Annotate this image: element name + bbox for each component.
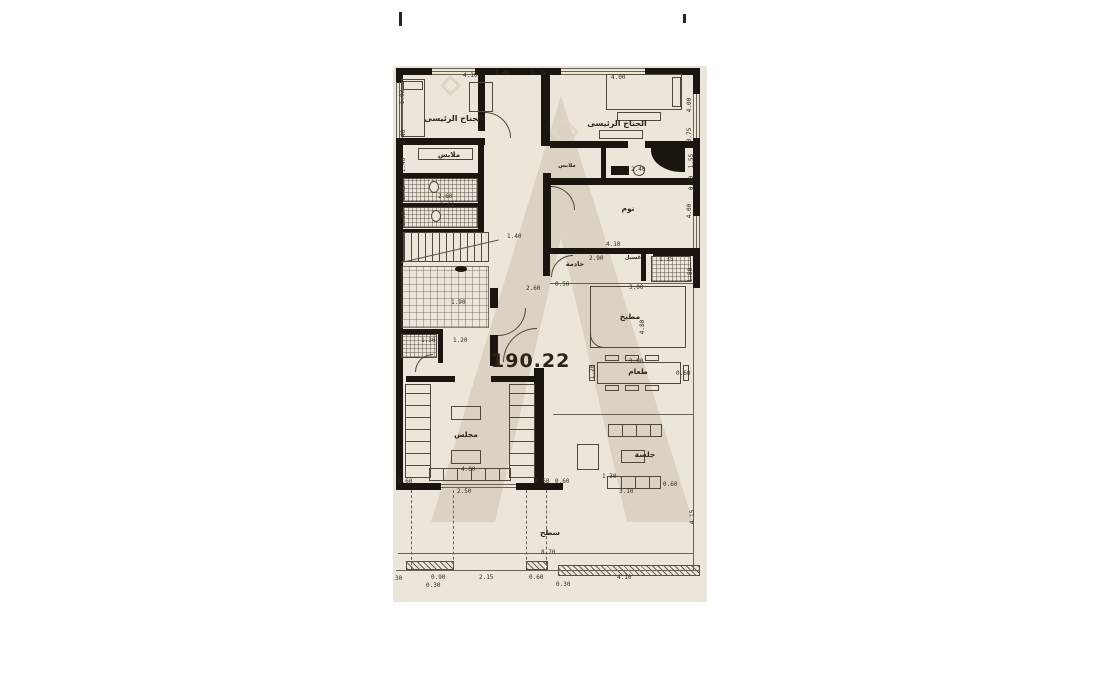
dim-label: 1.30 (401, 212, 407, 226)
dim-label: 0.70 (689, 176, 695, 190)
dim-label: 30 (395, 576, 402, 582)
wall (693, 68, 700, 94)
dim-label: 0.50 (555, 282, 569, 288)
floor-plan: الجناح الرئيسى الجناح الرئيسى ملابس ملاب… (393, 66, 707, 602)
dim-label: 0.60 (398, 479, 412, 485)
terrace-dashed-line (411, 490, 412, 570)
dim-label: 4.00 (611, 75, 625, 81)
sofa (608, 424, 662, 437)
line (553, 414, 693, 415)
room-label-closet: ملابس (551, 163, 583, 169)
footing-hatch (526, 561, 548, 570)
wall (478, 138, 484, 232)
dim-label: 0.60 (555, 479, 569, 485)
wall (550, 141, 628, 148)
chair (605, 355, 619, 361)
page: { "document": { "type": "architectural-f… (0, 0, 1096, 693)
dim-label: 2.60 (440, 203, 454, 209)
dim-label: 1.35 (659, 257, 673, 263)
dim-label: 1.40 (507, 234, 521, 240)
dim-label: 1.40 (495, 71, 509, 77)
area-value: 190.22 (491, 350, 570, 372)
room-label-terrace: سطح (533, 528, 567, 537)
sink-counter (611, 166, 629, 175)
dim-label: 2.60 (438, 194, 452, 200)
dim-label: 1.90 (451, 300, 465, 306)
chair (625, 385, 639, 391)
wall (543, 254, 550, 276)
footing-hatch (406, 561, 454, 570)
page-corner-mark (399, 12, 402, 26)
wall (396, 138, 485, 145)
table (451, 406, 481, 420)
dim-label: 4.10 (617, 575, 631, 581)
wall (653, 248, 700, 256)
dim-label: 1.20 (590, 365, 596, 379)
dim-label: 4.00 (461, 467, 475, 473)
entry-floor-tiles (401, 266, 489, 328)
pillow (672, 77, 681, 107)
dim-label: 3.10 (619, 489, 633, 495)
dim-label: 4.00 (687, 98, 693, 112)
terrace-dashed-line (526, 490, 527, 570)
dim-label: 1.45 (401, 186, 407, 200)
dim-label: 0.30 (426, 583, 440, 589)
wall (550, 178, 700, 185)
dim-label: 1.30 (421, 338, 435, 344)
wall (534, 368, 544, 490)
room-label-maid: خادمة (557, 260, 593, 268)
pillow (403, 81, 423, 90)
majlis-sofa (509, 384, 535, 478)
dim-label: 1.30 (602, 474, 616, 480)
dim-label: 3.00 (629, 285, 643, 291)
wall (541, 68, 550, 146)
dim-label: 1.40 (401, 130, 407, 144)
dim-label: 1.50 (688, 268, 694, 282)
dim-label: 8.70 (541, 550, 555, 556)
chair (645, 385, 659, 391)
dim-label: 2.40 (631, 167, 645, 173)
dim-label: 2.90 (589, 256, 603, 262)
chair (605, 385, 619, 391)
dim-label: 3.00 (629, 359, 643, 365)
dim-label: 0.75 (687, 128, 693, 142)
line (693, 288, 694, 570)
dim-label: 0.30 (556, 582, 570, 588)
dim-label: 4.80 (640, 320, 646, 334)
window (441, 484, 516, 488)
toilet (429, 181, 439, 193)
room-label-bedroom: نوم (611, 204, 645, 213)
wall (601, 148, 606, 178)
dim-label: 0.70 (531, 71, 545, 77)
wardrobe (469, 82, 493, 112)
majlis-sofa (405, 384, 431, 478)
dim-label: 0.60 (663, 482, 677, 488)
dim-label: 0.60 (529, 575, 543, 581)
room-label-laundry: غسيل (619, 255, 647, 261)
page-corner-mark (683, 14, 686, 23)
wall (406, 376, 455, 382)
room-label-sitting: جلسة (626, 450, 664, 459)
armchair (577, 444, 599, 470)
stair-arrow (455, 266, 467, 272)
room-label-master-right: الجناح الرئيسى (573, 119, 661, 128)
wardrobe (599, 130, 643, 139)
table (451, 450, 481, 464)
room-label-master-left: الجناح الرئيسى (415, 114, 493, 123)
dim-label: 2.15 (479, 575, 493, 581)
dim-label: 4.00 (687, 204, 693, 218)
dim-label: 4.15 (690, 510, 696, 524)
dim-label: 2.50 (457, 489, 471, 495)
toilet (431, 210, 441, 222)
dim-label: 0.60 (676, 371, 690, 377)
room-label-majlis: مجلس (447, 430, 485, 439)
dim-label: 1.55 (689, 154, 695, 168)
wall (438, 329, 443, 363)
terrace-dashed-line (453, 490, 454, 570)
room-label-closet: ملابس (431, 151, 467, 159)
dim-label: 4.10 (606, 242, 620, 248)
dim-label: 1.40 (401, 158, 407, 172)
room-label-dining: طعام (617, 367, 659, 376)
line (550, 283, 693, 284)
wall (491, 376, 539, 382)
dim-label: 4.10 (463, 73, 477, 79)
wall (490, 288, 498, 308)
window (693, 94, 700, 138)
chair (645, 355, 659, 361)
dim-label: 0.90 (431, 575, 445, 581)
wall (543, 173, 551, 248)
dim-label: 1.20 (453, 338, 467, 344)
dim-label: 2.60 (526, 286, 540, 292)
dim-label: 0.60 (535, 479, 549, 485)
dim-label: 1.02 (400, 90, 406, 104)
